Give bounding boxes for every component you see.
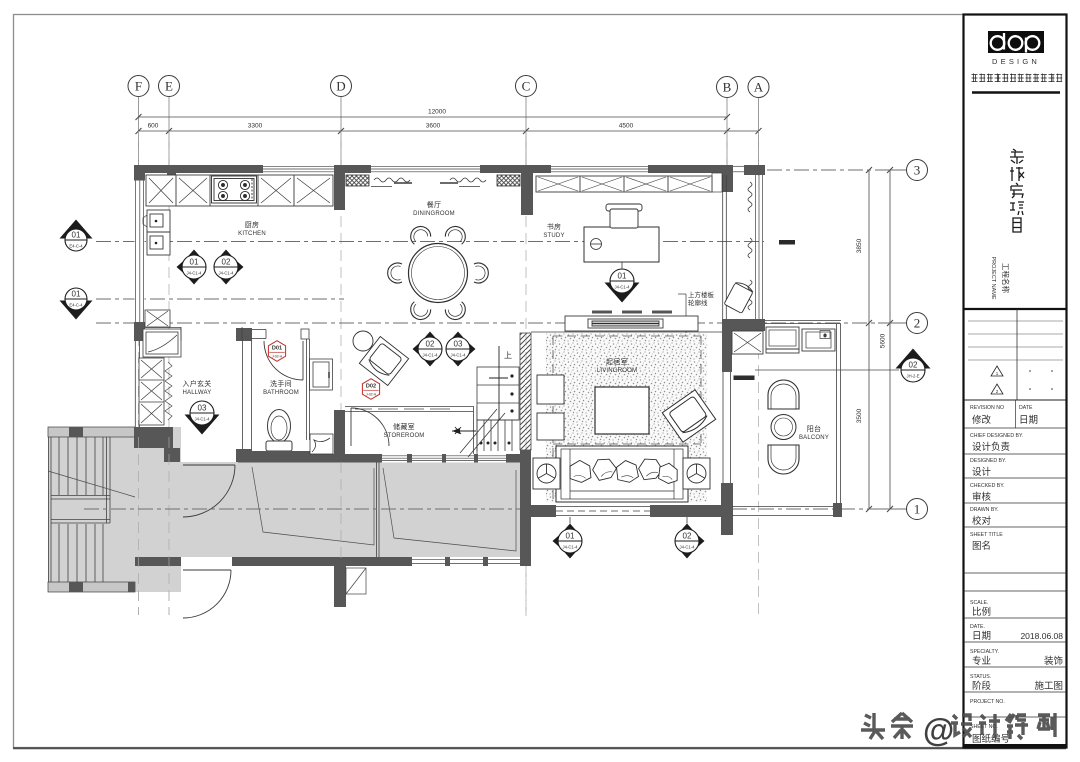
- svg-text:A: A: [754, 80, 764, 95]
- svg-text:03: 03: [454, 340, 463, 349]
- svg-text:日期: 日期: [1019, 415, 1038, 426]
- svg-text:阳台: 阳台: [807, 424, 822, 433]
- svg-text:STUDY: STUDY: [543, 233, 564, 239]
- svg-text:餐厅: 餐厅: [427, 200, 442, 209]
- svg-text:12000: 12000: [428, 109, 446, 116]
- svg-text:图名: 图名: [972, 540, 991, 552]
- svg-text:3850: 3850: [856, 238, 863, 253]
- svg-text:E4-C-4: E4-C-4: [69, 244, 83, 249]
- svg-text:e: e: [824, 333, 827, 339]
- svg-text:D01: D01: [272, 346, 282, 352]
- svg-text:厨房: 厨房: [245, 220, 260, 229]
- svg-text:SPECIALTY.: SPECIALTY.: [970, 649, 999, 655]
- svg-text:设计: 设计: [972, 466, 992, 478]
- svg-text:B: B: [723, 80, 732, 95]
- svg-text:01: 01: [618, 272, 627, 281]
- svg-text:DATE.: DATE.: [970, 624, 985, 630]
- svg-text:校对: 校对: [972, 515, 992, 527]
- svg-text:E4-C-4: E4-C-4: [69, 303, 83, 308]
- svg-text:上方楼板: 上方楼板: [688, 290, 715, 299]
- svg-text:轮廓线: 轮廓线: [688, 298, 708, 307]
- svg-text:CHECKED BY.: CHECKED BY.: [970, 483, 1005, 489]
- svg-text:上: 上: [504, 351, 512, 360]
- svg-text:J-02-H: J-02-H: [366, 392, 377, 396]
- svg-text:03: 03: [198, 404, 207, 413]
- svg-text:J-02-H: J-02-H: [272, 354, 283, 358]
- svg-text:J4-C1-4: J4-C1-4: [563, 545, 579, 550]
- svg-text:HALLWAY: HALLWAY: [183, 390, 212, 396]
- svg-text:BALCONY: BALCONY: [799, 435, 829, 441]
- svg-text:审核: 审核: [972, 491, 992, 503]
- svg-text:2: 2: [914, 316, 921, 331]
- svg-text:SCALE.: SCALE.: [970, 600, 988, 606]
- svg-text:REVISION NO: REVISION NO: [970, 405, 1004, 411]
- svg-text:J4-C1-4: J4-C1-4: [219, 271, 235, 276]
- svg-text:专业: 专业: [972, 655, 991, 667]
- svg-text:DATE: DATE: [1019, 405, 1033, 411]
- svg-text:DESIGNED BY.: DESIGNED BY.: [970, 458, 1006, 464]
- svg-text:STATUS.: STATUS.: [970, 674, 991, 680]
- svg-text:设计负责: 设计负责: [972, 441, 1010, 453]
- svg-text:日期: 日期: [972, 631, 991, 642]
- svg-text:装饰: 装饰: [1044, 655, 1063, 667]
- svg-text:02: 02: [683, 532, 692, 541]
- svg-text:@: @: [923, 712, 954, 748]
- svg-text:01: 01: [190, 258, 199, 267]
- svg-text:J4-C1-4: J4-C1-4: [187, 271, 203, 276]
- svg-text:02: 02: [426, 340, 435, 349]
- svg-text:STOREROOM: STOREROOM: [383, 433, 424, 439]
- svg-text:02: 02: [909, 361, 918, 370]
- svg-text:BATHROOM: BATHROOM: [263, 390, 299, 396]
- svg-text:JH-2-E: JH-2-E: [906, 374, 919, 379]
- svg-text:2018.06.08: 2018.06.08: [1020, 631, 1063, 641]
- svg-text:SHEET TITLE: SHEET TITLE: [970, 532, 1003, 538]
- svg-text:阶段: 阶段: [972, 680, 992, 692]
- svg-text:D02: D02: [366, 384, 376, 390]
- svg-text:01: 01: [566, 532, 575, 541]
- svg-text:洗手间: 洗手间: [270, 379, 292, 388]
- svg-text:J4-C1-4: J4-C1-4: [195, 417, 211, 422]
- svg-text:J4-C1-4: J4-C1-4: [615, 285, 631, 290]
- svg-text:DININGROOM: DININGROOM: [413, 211, 455, 217]
- svg-text:3: 3: [914, 163, 921, 178]
- svg-text:KITCHEN: KITCHEN: [238, 231, 266, 237]
- svg-text:F: F: [135, 79, 142, 94]
- svg-text:3500: 3500: [856, 408, 863, 423]
- svg-text:02: 02: [222, 258, 231, 267]
- svg-text:5600: 5600: [880, 333, 887, 348]
- svg-text:PROJECT NAME: PROJECT NAME: [990, 257, 996, 300]
- svg-text:01: 01: [72, 290, 81, 299]
- svg-text:图纸编号: 图纸编号: [972, 733, 1010, 745]
- svg-text:LIVINGROOM: LIVINGROOM: [597, 368, 637, 374]
- svg-text:J4-C1-4: J4-C1-4: [680, 545, 696, 550]
- svg-text:D: D: [336, 79, 345, 94]
- svg-text:J4-C1-4: J4-C1-4: [451, 353, 467, 358]
- svg-text:J4-C1-4: J4-C1-4: [423, 353, 439, 358]
- svg-text:储藏室: 储藏室: [393, 422, 415, 431]
- svg-text:E: E: [165, 79, 173, 94]
- svg-text:01: 01: [72, 231, 81, 240]
- svg-text:书房: 书房: [547, 222, 562, 231]
- svg-text:工程名称: 工程名称: [1001, 263, 1011, 293]
- svg-text:CHIEF DESIGNED BY.: CHIEF DESIGNED BY.: [970, 433, 1023, 439]
- svg-text:修改: 修改: [972, 414, 992, 426]
- svg-text:4500: 4500: [619, 123, 634, 130]
- svg-text:施工图: 施工图: [1034, 680, 1063, 692]
- svg-text:比例: 比例: [972, 606, 991, 618]
- svg-text:DESIGN: DESIGN: [992, 57, 1040, 66]
- svg-text:3600: 3600: [426, 123, 441, 130]
- svg-text:C: C: [522, 79, 531, 94]
- svg-text:入户玄关: 入户玄关: [182, 379, 211, 388]
- svg-text:DRAWN BY.: DRAWN BY.: [970, 507, 999, 513]
- svg-text:1: 1: [914, 502, 921, 517]
- svg-text:3300: 3300: [248, 123, 263, 130]
- svg-text:PROJECT NO.: PROJECT NO.: [970, 699, 1005, 705]
- svg-text:起居室: 起居室: [606, 357, 628, 366]
- svg-text:600: 600: [148, 123, 159, 130]
